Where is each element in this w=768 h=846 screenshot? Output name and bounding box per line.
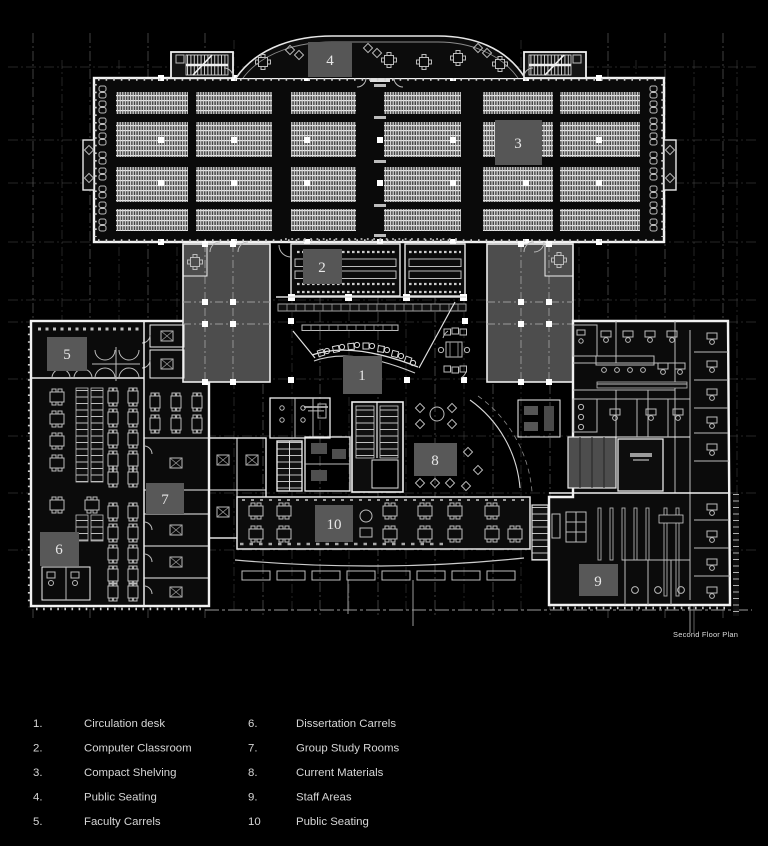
svg-text:Computer Classroom: Computer Classroom [84, 743, 192, 755]
svg-text:9: 9 [594, 574, 602, 590]
svg-text:5: 5 [63, 347, 71, 363]
svg-text:8: 8 [431, 453, 439, 469]
svg-text:5.: 5. [33, 816, 43, 828]
svg-text:Public Seating: Public Seating [296, 816, 369, 828]
svg-text:Public Seating: Public Seating [84, 792, 157, 804]
svg-text:1: 1 [358, 368, 366, 384]
svg-text:2.: 2. [33, 743, 43, 755]
svg-text:4.: 4. [33, 792, 43, 804]
svg-text:1.: 1. [33, 718, 43, 730]
svg-text:4: 4 [326, 53, 334, 69]
svg-text:Staff Areas: Staff Areas [296, 792, 352, 804]
svg-text:Faculty Carrels: Faculty Carrels [84, 816, 161, 828]
svg-text:6: 6 [55, 542, 63, 558]
svg-text:2: 2 [318, 260, 326, 276]
svg-text:7.: 7. [248, 743, 258, 755]
svg-text:Dissertation Carrels: Dissertation Carrels [296, 718, 396, 730]
svg-text:10: 10 [248, 816, 261, 828]
svg-text:Compact Shelving: Compact Shelving [84, 767, 176, 779]
svg-text:7: 7 [161, 492, 169, 508]
svg-text:3: 3 [514, 136, 522, 152]
svg-text:6.: 6. [248, 718, 258, 730]
svg-text:Circulation desk: Circulation desk [84, 718, 165, 730]
svg-text:10: 10 [327, 517, 342, 533]
svg-text:3.: 3. [33, 767, 43, 779]
svg-text:Current Materials: Current Materials [296, 767, 384, 779]
svg-text:Group Study Rooms: Group Study Rooms [296, 743, 399, 755]
svg-text:Second Floor Plan: Second Floor Plan [673, 630, 738, 639]
svg-text:8.: 8. [248, 767, 258, 779]
svg-text:9.: 9. [248, 792, 258, 804]
